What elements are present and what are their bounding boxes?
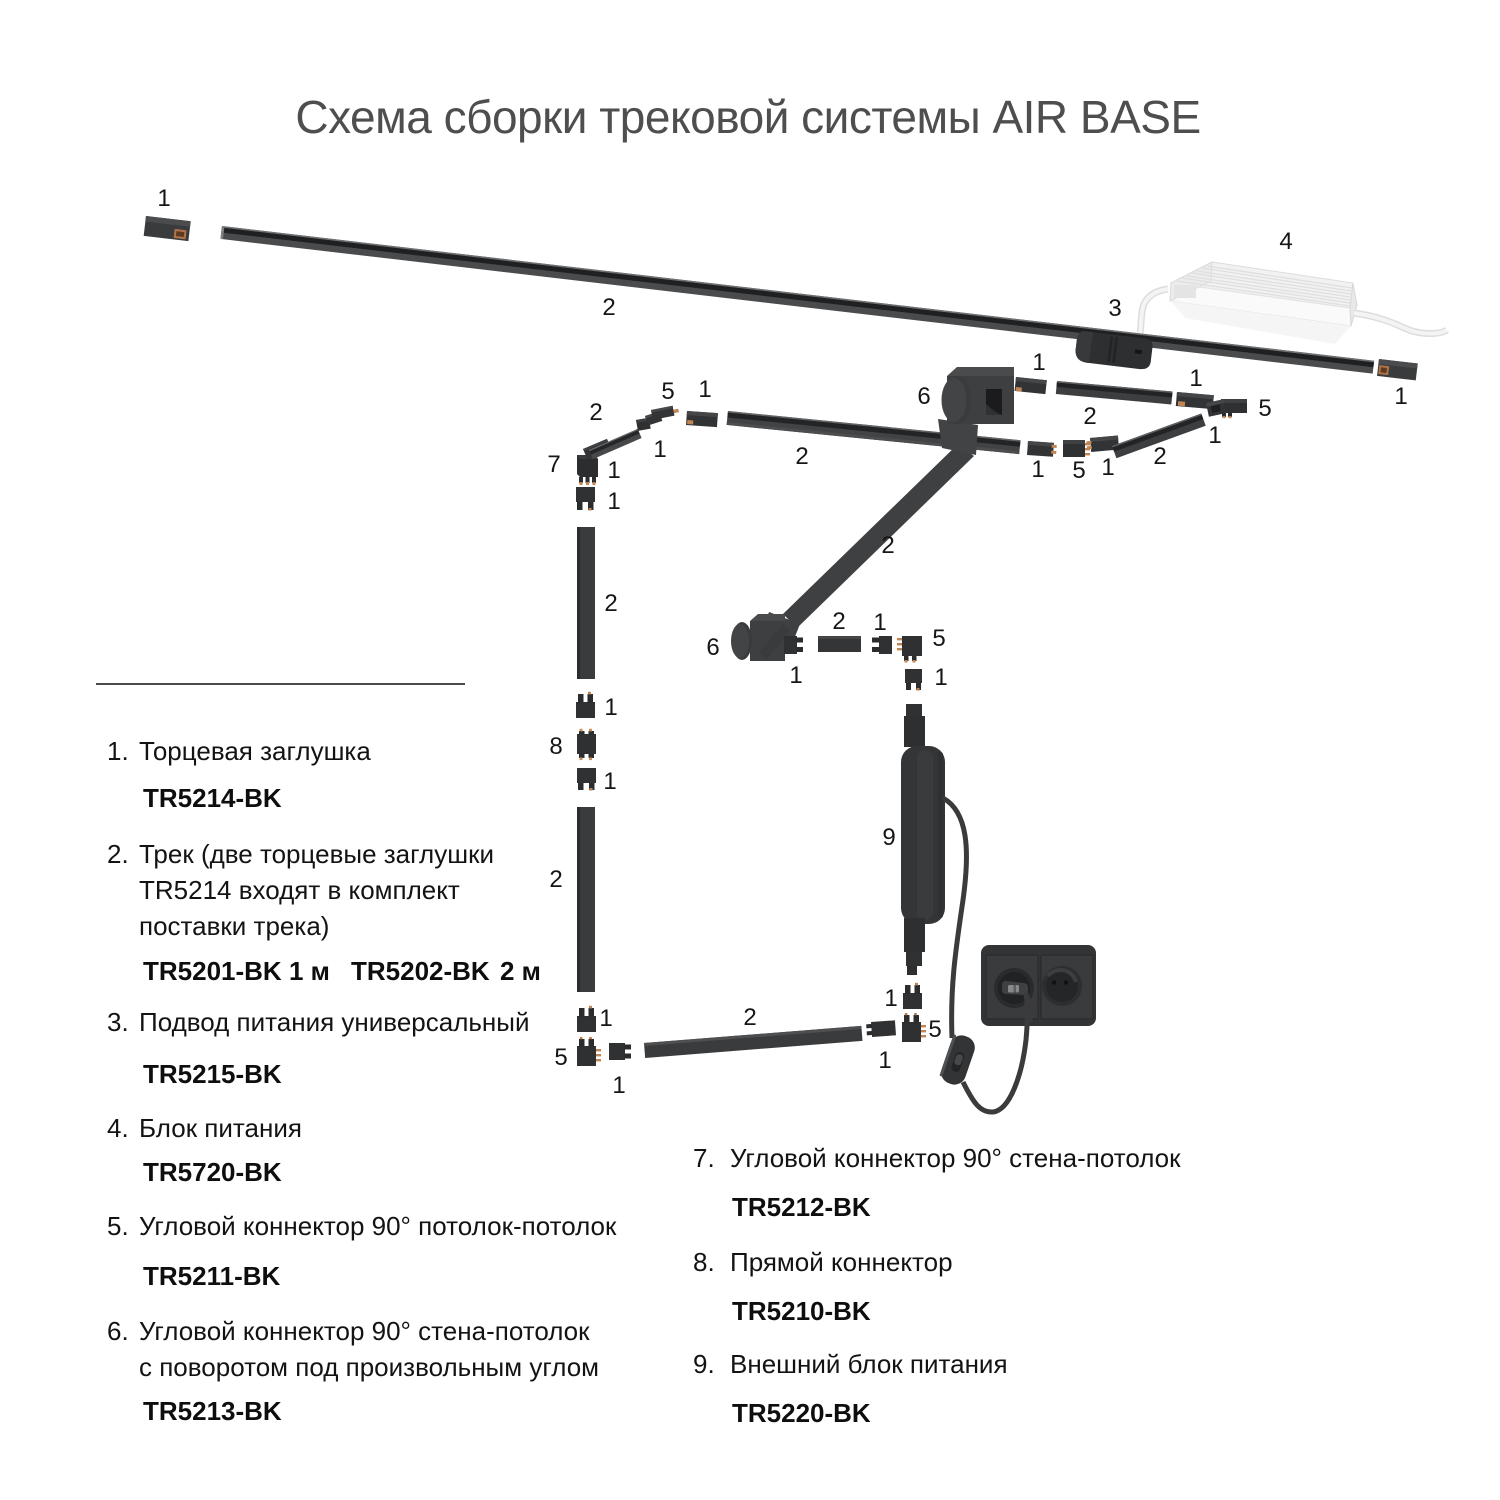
svg-text:1: 1 [884, 985, 897, 1012]
svg-text:2.: 2. [107, 839, 129, 869]
svg-text:1.: 1. [107, 736, 129, 766]
svg-text:2: 2 [602, 294, 615, 321]
svg-text:5: 5 [554, 1044, 567, 1071]
svg-text:1: 1 [599, 1005, 612, 1032]
svg-text:5: 5 [661, 378, 674, 405]
svg-text:5: 5 [928, 1016, 941, 1043]
svg-text:Подвод питания универсальный: Подвод питания универсальный [139, 1007, 529, 1037]
svg-text:Угловой коннектор 90° стена-по: Угловой коннектор 90° стена-потолок [730, 1143, 1181, 1173]
svg-text:1: 1 [878, 1047, 891, 1074]
svg-text:TR5214-BK: TR5214-BK [143, 783, 282, 813]
svg-text:TR5212-BK: TR5212-BK [732, 1192, 871, 1222]
svg-text:Внешний блок питания: Внешний блок питания [730, 1349, 1008, 1379]
svg-text:Блок питания: Блок питания [139, 1113, 302, 1143]
svg-text:7.: 7. [693, 1143, 715, 1173]
svg-text:9.: 9. [693, 1349, 715, 1379]
svg-text:с поворотом под произвольным у: с поворотом под произвольным углом [139, 1352, 599, 1382]
svg-text:5: 5 [1072, 457, 1085, 484]
svg-text:TR5210-BK: TR5210-BK [732, 1296, 871, 1326]
svg-text:2 м: 2 м [500, 956, 541, 986]
svg-text:2: 2 [795, 443, 808, 470]
svg-text:1: 1 [1032, 349, 1045, 376]
svg-text:1: 1 [607, 488, 620, 515]
svg-text:5: 5 [932, 625, 945, 652]
svg-text:2: 2 [604, 590, 617, 617]
svg-text:1: 1 [1189, 365, 1202, 392]
svg-text:5: 5 [1258, 395, 1271, 422]
svg-text:Схема сборки трековой системы: Схема сборки трековой системы AIR BASE [295, 91, 1200, 143]
svg-text:7: 7 [547, 451, 560, 478]
svg-text:1: 1 [607, 457, 620, 484]
svg-text:1: 1 [612, 1072, 625, 1099]
svg-text:1: 1 [1031, 456, 1044, 483]
svg-text:1: 1 [603, 768, 616, 795]
svg-text:4: 4 [1279, 228, 1292, 255]
svg-text:TR5215-BK: TR5215-BK [143, 1059, 282, 1089]
svg-text:Угловой коннектор 90° стена-по: Угловой коннектор 90° стена-потолок [139, 1316, 590, 1346]
svg-text:2: 2 [881, 532, 894, 559]
svg-text:1: 1 [1394, 383, 1407, 410]
svg-text:2: 2 [549, 866, 562, 893]
svg-text:1: 1 [698, 376, 711, 403]
svg-text:1 м: 1 м [289, 956, 330, 986]
svg-text:9: 9 [882, 824, 895, 851]
svg-text:TR5213-BK: TR5213-BK [143, 1396, 282, 1426]
svg-text:5.: 5. [107, 1211, 129, 1241]
svg-text:TR5720-BK: TR5720-BK [143, 1157, 282, 1187]
svg-text:TR5202-BK: TR5202-BK [351, 956, 490, 986]
svg-text:2: 2 [743, 1004, 756, 1031]
svg-text:2: 2 [589, 399, 602, 426]
svg-text:1: 1 [653, 436, 666, 463]
svg-text:TR5220-BK: TR5220-BK [732, 1398, 871, 1428]
svg-text:1: 1 [604, 694, 617, 721]
svg-text:6: 6 [706, 634, 719, 661]
svg-text:3: 3 [1108, 295, 1121, 322]
svg-text:6: 6 [917, 383, 930, 410]
svg-text:Прямой коннектор: Прямой коннектор [730, 1247, 953, 1277]
svg-text:8: 8 [549, 733, 562, 760]
svg-text:1: 1 [934, 664, 947, 691]
svg-text:2: 2 [1153, 443, 1166, 470]
svg-text:4.: 4. [107, 1113, 129, 1143]
svg-text:TR5211-BK: TR5211-BK [143, 1261, 280, 1291]
svg-text:Трек (две торцевые заглушки: Трек (две торцевые заглушки [139, 839, 494, 869]
svg-text:2: 2 [1083, 403, 1096, 430]
svg-text:поставки трека): поставки трека) [139, 911, 329, 941]
svg-text:2: 2 [832, 608, 845, 635]
svg-text:6.: 6. [107, 1316, 129, 1346]
svg-text:1: 1 [789, 662, 802, 689]
svg-text:3.: 3. [107, 1007, 129, 1037]
svg-text:TR5214 входят в комплект: TR5214 входят в комплект [139, 875, 460, 905]
svg-text:1: 1 [873, 609, 886, 636]
svg-text:1: 1 [1101, 454, 1114, 481]
svg-text:1: 1 [1208, 422, 1221, 449]
svg-text:TR5201-BK: TR5201-BK [143, 956, 282, 986]
svg-text:Угловой коннектор 90° потолок-: Угловой коннектор 90° потолок-потолок [139, 1211, 617, 1241]
svg-text:1: 1 [157, 185, 170, 212]
svg-text:8.: 8. [693, 1247, 715, 1277]
svg-text:Торцевая заглушка: Торцевая заглушка [139, 736, 371, 766]
